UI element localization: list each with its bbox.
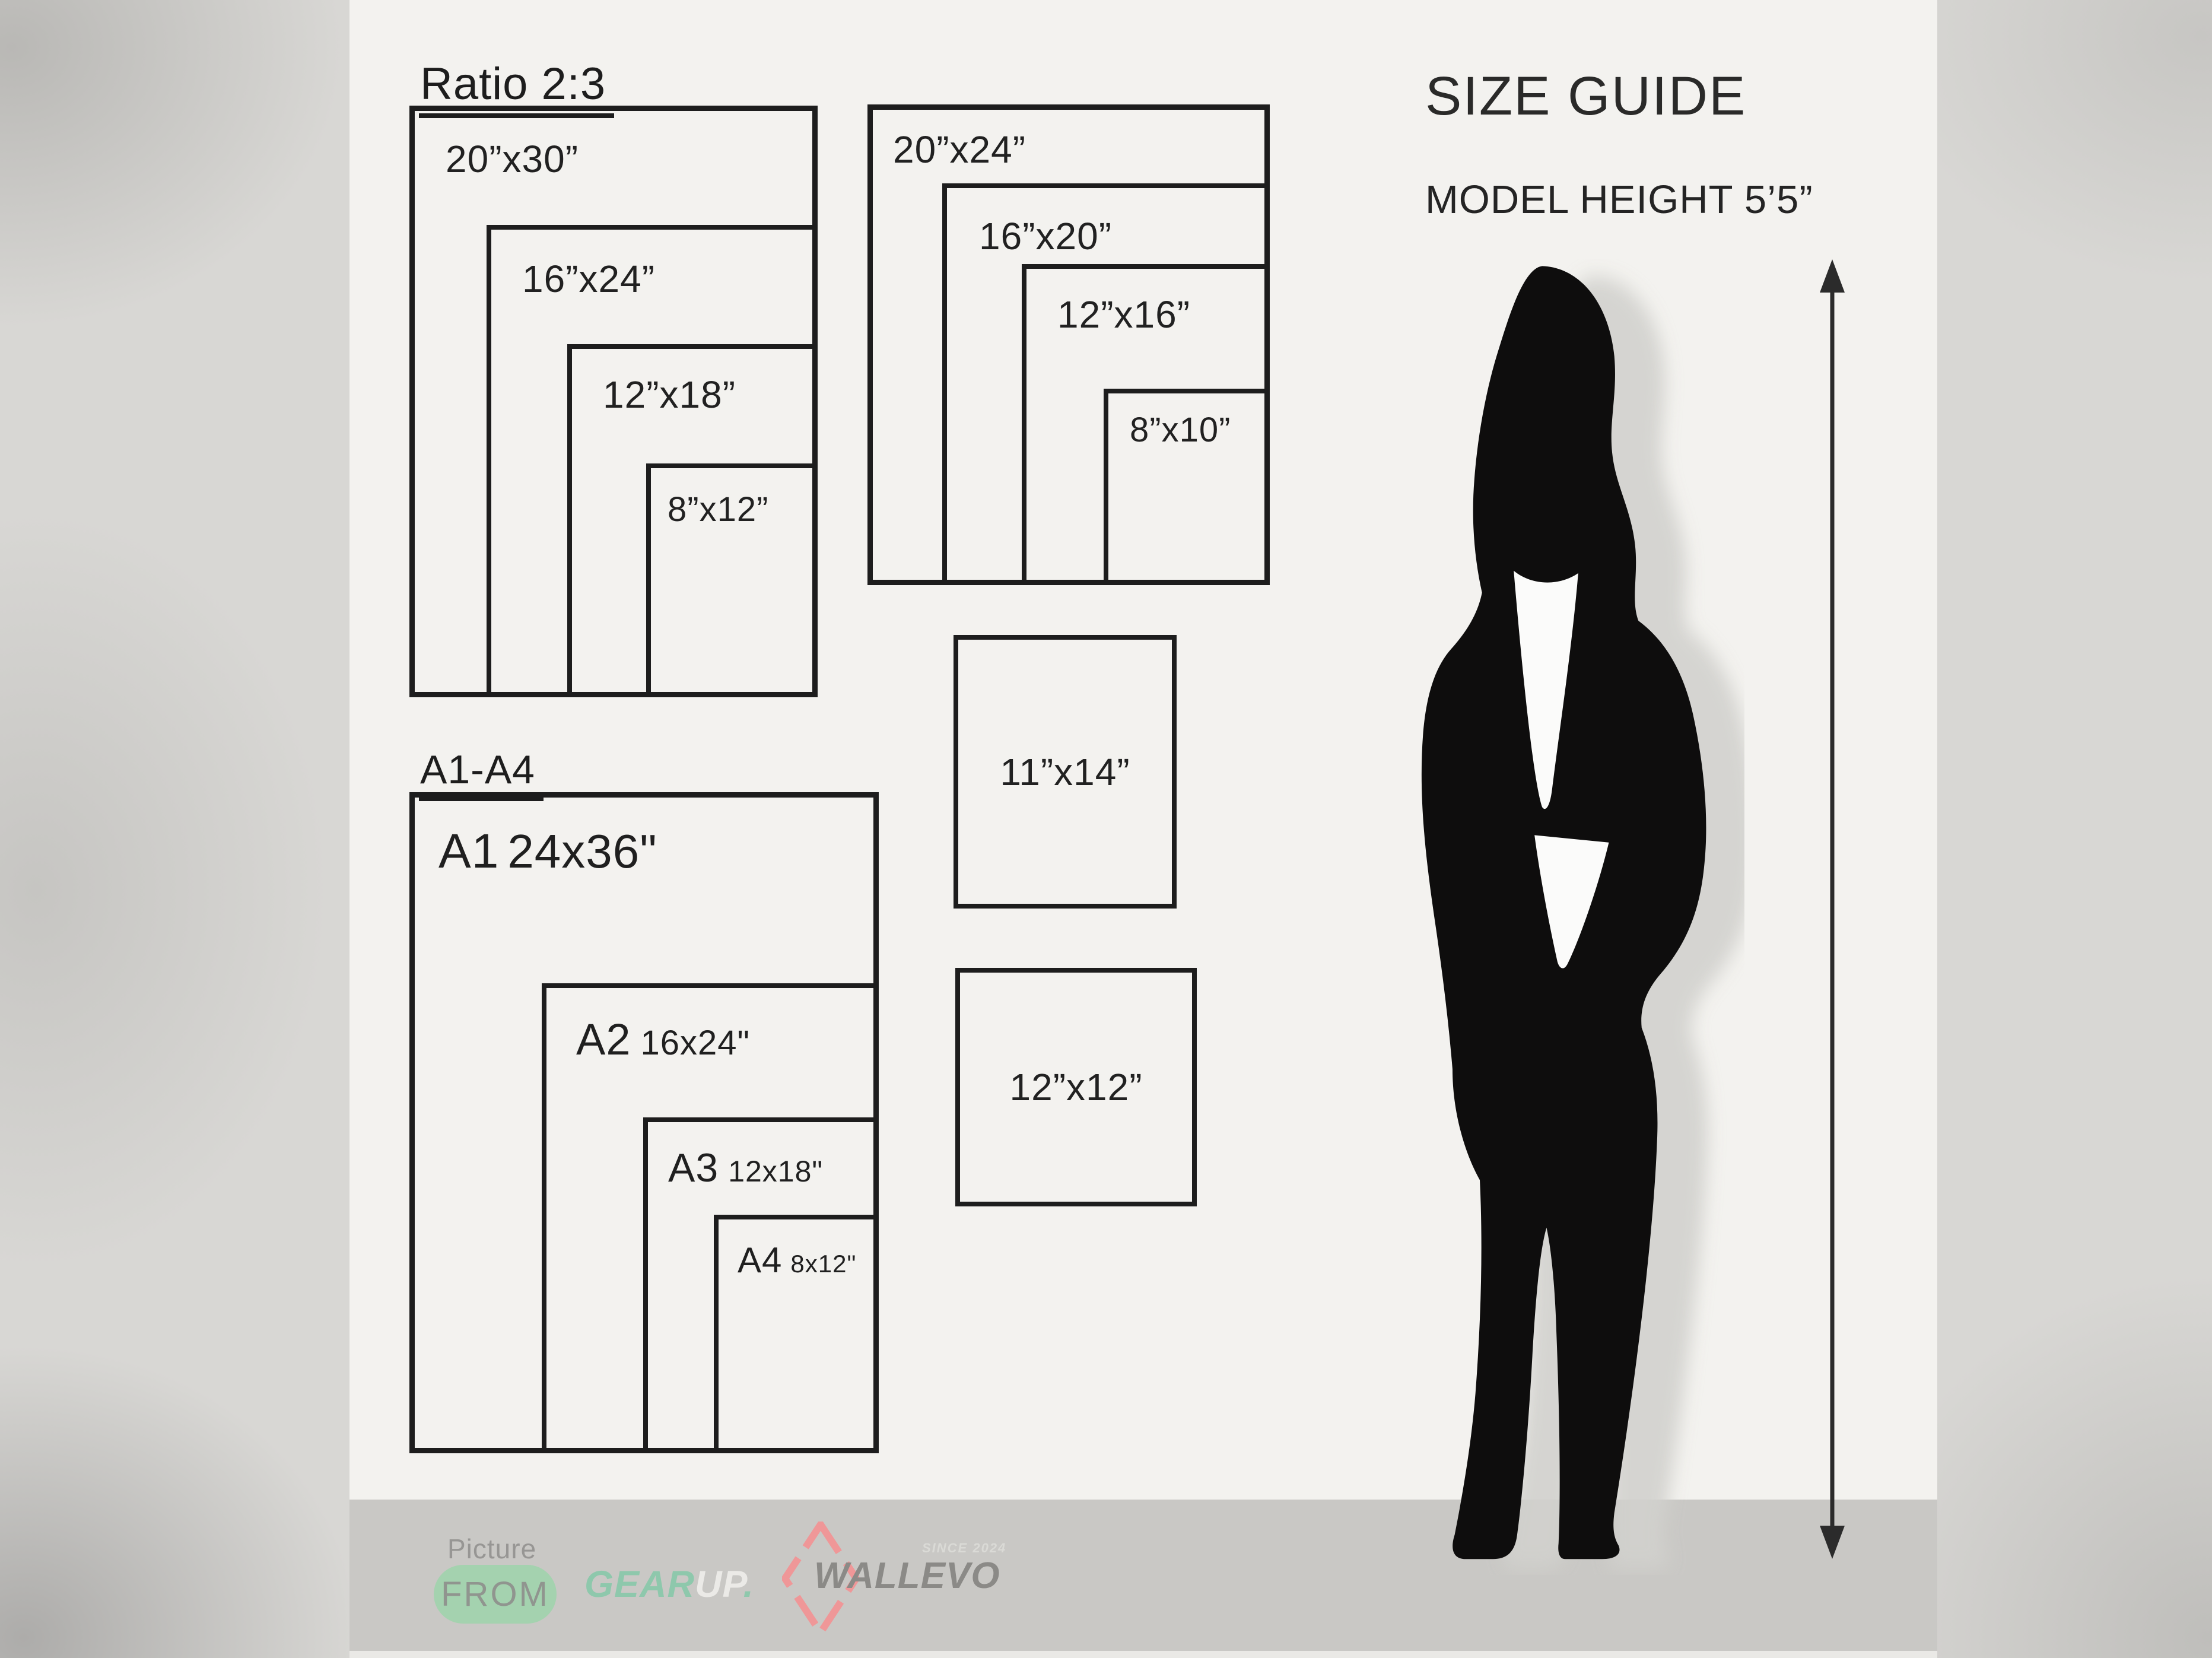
gearup-logo-up: UP	[695, 1564, 743, 1605]
woman-silhouette-icon	[1362, 259, 1744, 1575]
from-pill-badge: FROM	[434, 1565, 557, 1624]
gearup-logo: GEARUP.	[584, 1563, 754, 1606]
size-box-11x14: 11”x14”	[954, 635, 1177, 909]
size-label-8x12: 8”x12”	[668, 490, 768, 529]
size-label-a3: A312x18"	[668, 1145, 823, 1191]
size-box-8x12: 8”x12”	[646, 463, 818, 697]
size-label-16x24: 16”x24”	[522, 257, 655, 301]
size-label-20x24: 20”x24”	[893, 128, 1026, 171]
from-label: FROM	[441, 1574, 549, 1614]
size-label-a1: A124x36"	[438, 824, 657, 879]
height-measure-arrow-icon	[1804, 252, 1861, 1567]
wallevo-logo: SINCE 2024 WALLEVO	[782, 1517, 1055, 1641]
size-label-16x20: 16”x20”	[979, 214, 1112, 258]
size-label-12x16: 12”x16”	[1057, 293, 1190, 336]
size-label-20x30: 20”x30”	[446, 137, 579, 181]
size-box-12x12: 12”x12”	[955, 968, 1197, 1206]
footer-bottom-band	[349, 1651, 1937, 1658]
size-label-11x14: 11”x14”	[1000, 750, 1130, 794]
size-box-a4: A48x12"	[714, 1215, 879, 1453]
wallevo-name-label: WALLEVO	[814, 1555, 1000, 1597]
gearup-logo-gear: GEAR	[584, 1564, 695, 1605]
model-height-label: MODEL HEIGHT 5’5”	[1425, 177, 1813, 223]
picture-label: Picture	[447, 1533, 536, 1565]
page-title: SIZE GUIDE	[1425, 65, 1746, 128]
size-label-12x18: 12”x18”	[603, 373, 736, 417]
size-box-8x10: 8”x10”	[1104, 389, 1270, 585]
size-label-a4: A48x12"	[738, 1240, 856, 1281]
wallevo-since-label: SINCE 2024	[922, 1541, 1006, 1556]
size-label-12x12: 12”x12”	[1010, 1065, 1143, 1109]
gearup-logo-dot: .	[743, 1564, 754, 1605]
size-label-a2: A216x24"	[576, 1014, 750, 1065]
size-label-8x10: 8”x10”	[1130, 410, 1231, 450]
